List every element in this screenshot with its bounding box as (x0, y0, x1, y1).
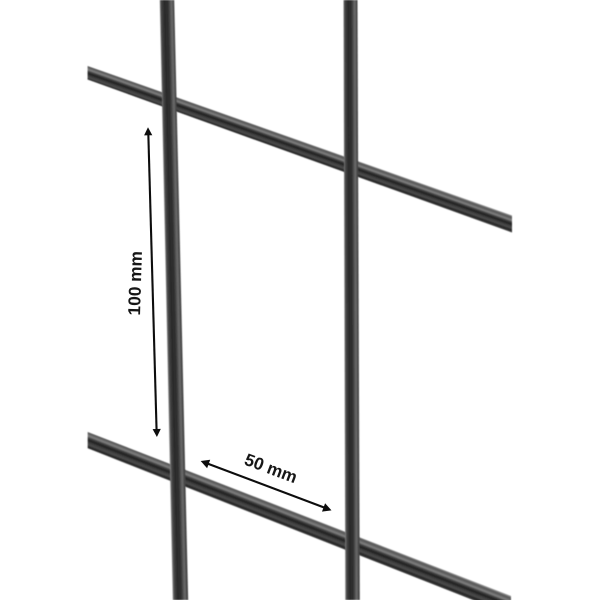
svg-text:100 mm: 100 mm (124, 251, 146, 316)
